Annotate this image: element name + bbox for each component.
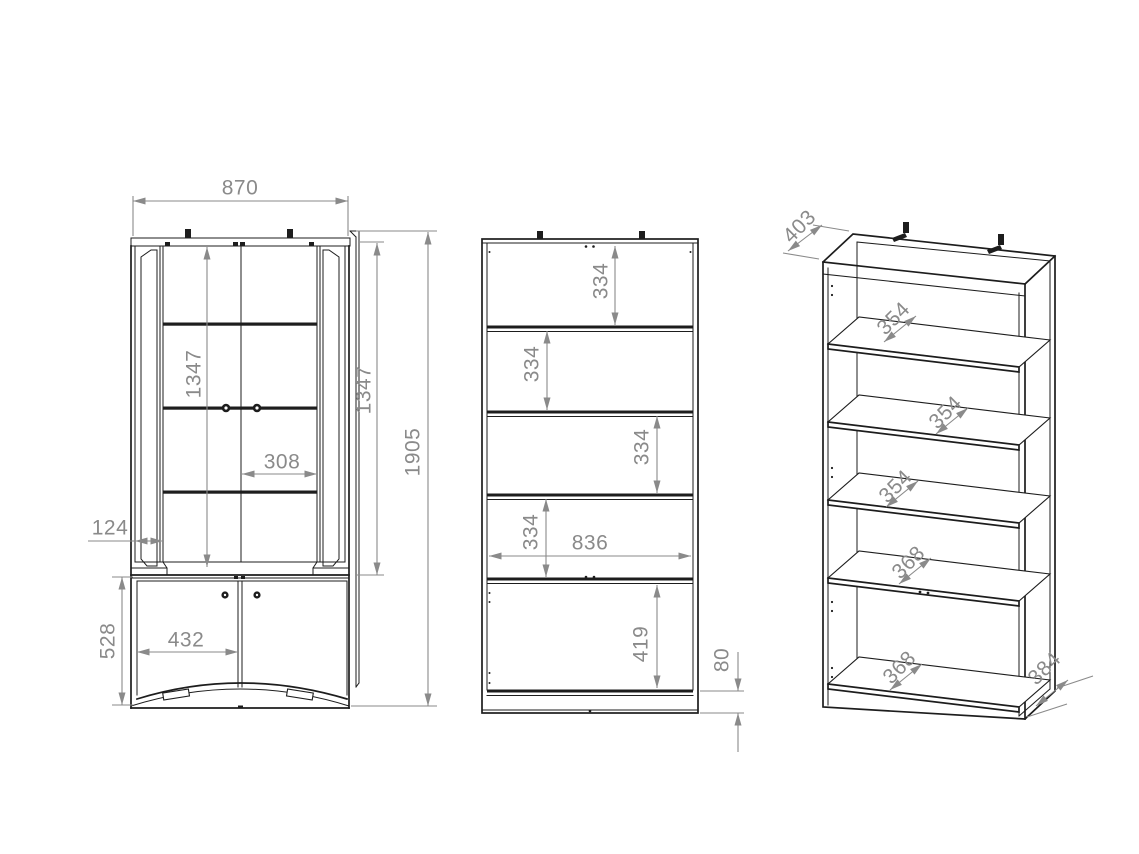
dim-label: 334 — [630, 429, 653, 466]
arched-base — [131, 683, 349, 709]
wall-clip-icon — [287, 229, 293, 238]
dim-glass-door-width: 308 — [242, 450, 317, 474]
dim-label: 334 — [520, 346, 543, 383]
dim-lower-door-height: 528 — [96, 577, 133, 705]
dim-overall-height: 1905 — [351, 231, 437, 706]
dim-shelf-gap-2: 334 — [520, 331, 547, 410]
shelf-boards — [487, 326, 693, 696]
wall-clip-icon — [185, 229, 191, 238]
view-front-open: 334 334 334 334 836 419 80 — [482, 231, 744, 752]
dim-label: 308 — [264, 450, 301, 473]
dim-plinth-height: 80 — [700, 648, 744, 752]
fitting-dots — [489, 245, 692, 712]
carcass-outline — [482, 239, 698, 713]
dim-bottom-compartment-height: 419 — [629, 585, 657, 688]
view-front-with-doors: 870 1347 308 124 528 432 13 — [88, 176, 437, 708]
dim-overall-width: 870 — [133, 176, 348, 236]
dim-label: 432 — [168, 628, 205, 651]
dim-label: 334 — [519, 514, 542, 551]
dim-label: 1905 — [401, 428, 424, 477]
dim-label: 124 — [92, 516, 129, 539]
glass-door-knob-icon — [222, 404, 231, 413]
lower-door-knob-icon — [253, 591, 260, 598]
side-panel-outline — [350, 231, 359, 687]
dim-label: 528 — [96, 623, 119, 660]
glass-shelf-bar — [163, 323, 317, 326]
dim-shelf-gap-1: 334 — [589, 246, 615, 325]
glass-shelf-bar — [163, 407, 317, 410]
wall-clip-icon — [639, 231, 645, 239]
dim-shelf-gap-4: 334 — [519, 499, 546, 577]
dim-label: 334 — [589, 263, 612, 300]
drawing-canvas: 870 1347 308 124 528 432 13 — [0, 0, 1139, 854]
glass-shelf-bar — [163, 491, 317, 494]
dim-label: 1347 — [182, 350, 205, 399]
glass-door-knob-icon — [253, 404, 262, 413]
view-isometric: 403 354 354 354 368 368 384 — [779, 206, 1093, 719]
technical-drawing: 870 1347 308 124 528 432 13 — [0, 0, 1139, 854]
dim-glass-door-height-right: 1347 — [352, 242, 384, 575]
dim-shelf-gap-3: 334 — [630, 416, 657, 493]
dim-lower-door-width: 432 — [137, 628, 238, 652]
dim-label: 403 — [779, 206, 821, 248]
dim-label: 1347 — [352, 366, 375, 415]
dim-label: 80 — [710, 648, 733, 672]
hinge-marks — [165, 242, 314, 579]
left-pilaster — [135, 246, 163, 566]
wall-clip-icon — [537, 231, 543, 239]
right-pilaster — [317, 246, 345, 566]
dim-label: 870 — [222, 176, 259, 199]
dim-side-frame-width: 124 — [88, 516, 163, 541]
lower-door-knob-icon — [221, 591, 228, 598]
dim-label: 419 — [629, 626, 652, 663]
dim-label: 836 — [572, 531, 609, 554]
pilaster-feet — [131, 562, 349, 575]
